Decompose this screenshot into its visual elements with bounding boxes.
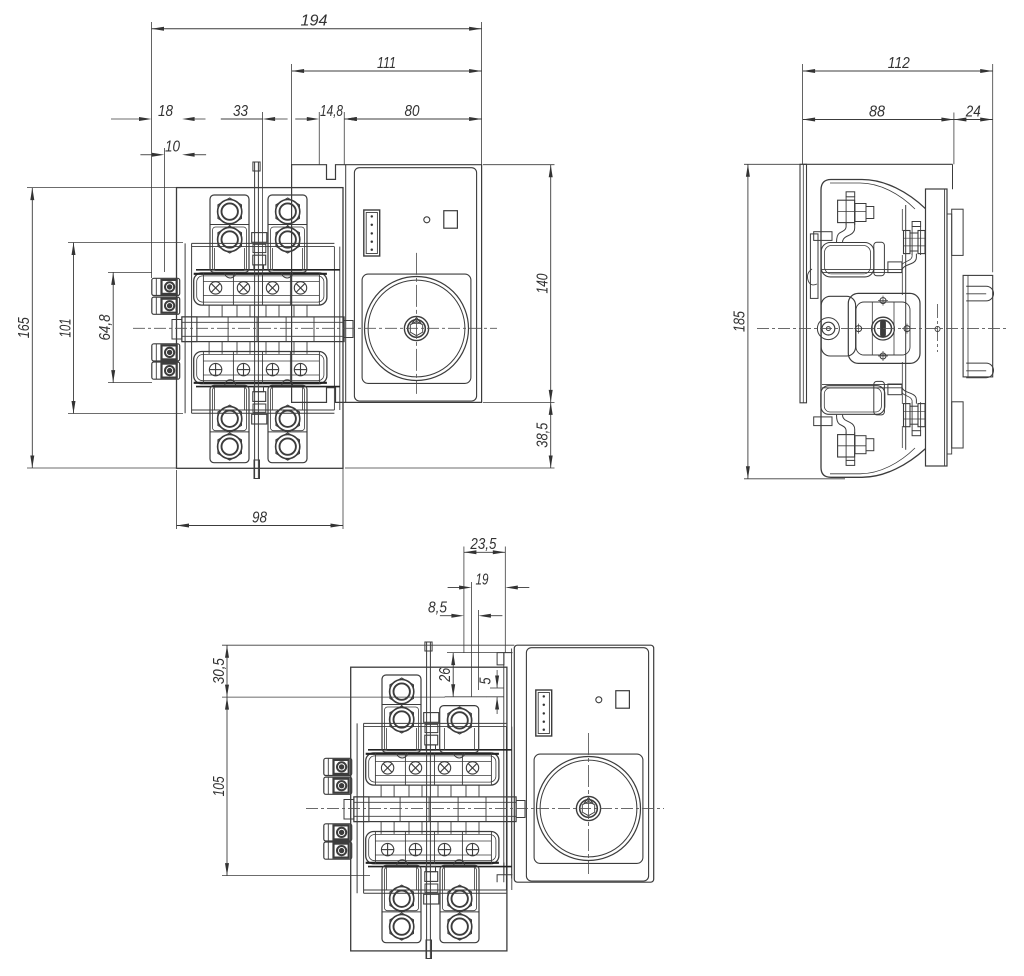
svg-text:88: 88 — [869, 103, 885, 120]
svg-text:33: 33 — [233, 103, 248, 120]
svg-text:24: 24 — [965, 103, 981, 120]
svg-text:14,8: 14,8 — [320, 103, 343, 120]
svg-text:8,5: 8,5 — [428, 600, 447, 617]
svg-text:185: 185 — [732, 311, 749, 332]
svg-text:23,5: 23,5 — [470, 536, 497, 553]
svg-text:111: 111 — [377, 55, 396, 72]
svg-text:112: 112 — [888, 55, 910, 72]
svg-text:101: 101 — [57, 319, 74, 338]
svg-text:19: 19 — [476, 571, 489, 588]
svg-text:10: 10 — [165, 139, 180, 156]
svg-text:80: 80 — [405, 103, 420, 120]
svg-text:140: 140 — [535, 273, 552, 293]
svg-text:38,5: 38,5 — [535, 423, 552, 448]
svg-text:194: 194 — [301, 13, 328, 30]
svg-text:105: 105 — [211, 776, 228, 796]
svg-text:30,5: 30,5 — [211, 658, 228, 684]
svg-text:5: 5 — [477, 677, 494, 684]
svg-text:64,8: 64,8 — [97, 314, 114, 340]
svg-text:98: 98 — [252, 509, 267, 526]
svg-text:26: 26 — [437, 668, 454, 683]
svg-text:165: 165 — [16, 317, 33, 338]
svg-text:18: 18 — [158, 103, 173, 120]
